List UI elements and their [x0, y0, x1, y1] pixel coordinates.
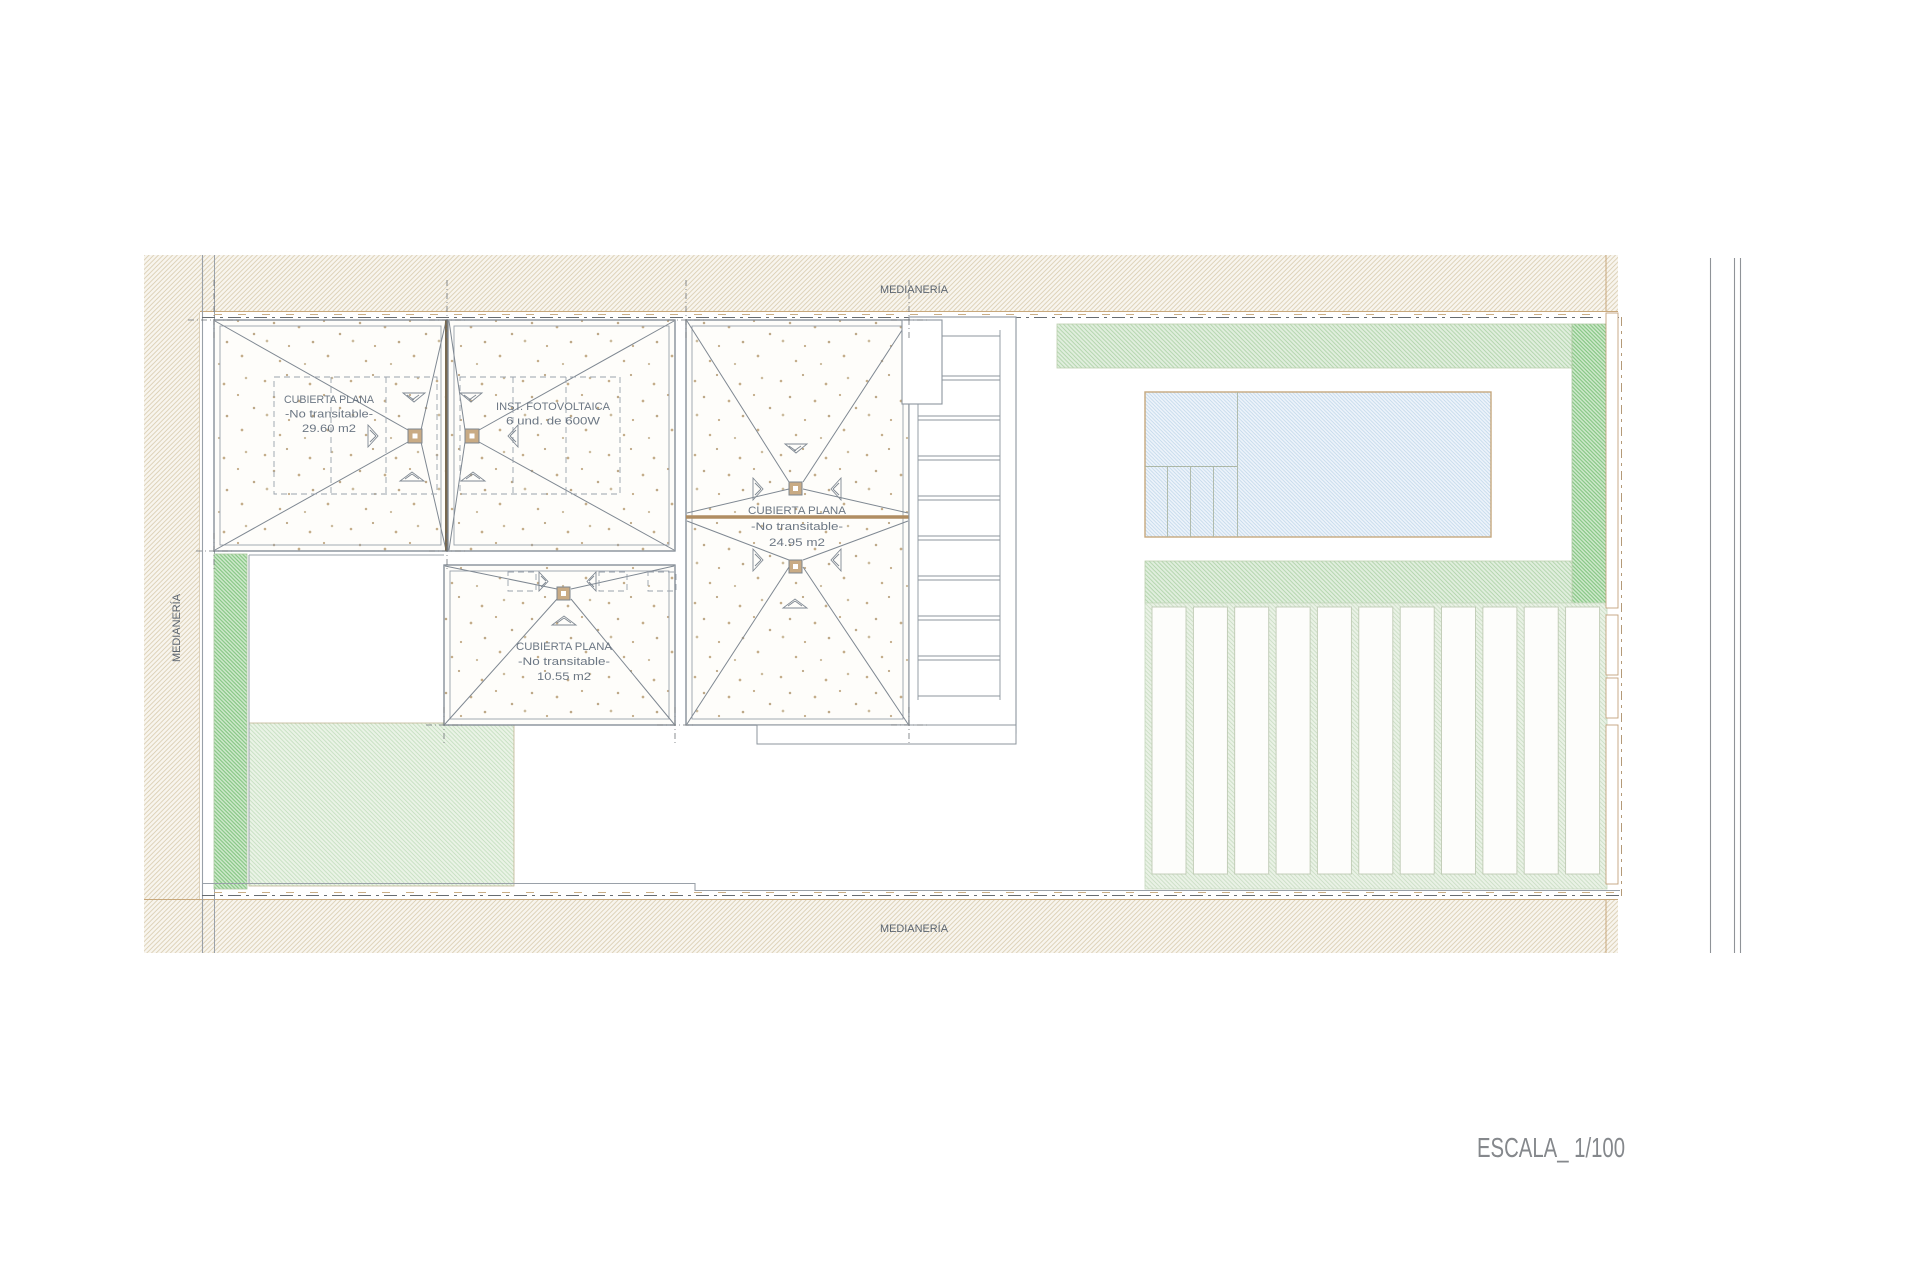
- svg-text:10.55 m2: 10.55 m2: [537, 671, 591, 683]
- svg-text:MEDIANERÍA: MEDIANERÍA: [880, 283, 949, 296]
- svg-text:24.95 m2: 24.95 m2: [769, 537, 825, 549]
- svg-text:29.60 m2: 29.60 m2: [302, 423, 356, 435]
- svg-text:MEDIANERÍA: MEDIANERÍA: [170, 593, 183, 662]
- svg-text:CUBIERTA PLANA: CUBIERTA PLANA: [284, 394, 375, 406]
- svg-text:-No transitable-: -No transitable-: [518, 656, 610, 668]
- svg-text:-No transitable-: -No transitable-: [285, 409, 373, 421]
- svg-text:CUBIERTA PLANA: CUBIERTA PLANA: [748, 505, 847, 517]
- svg-text:CUBIERTA PLANA: CUBIERTA PLANA: [516, 641, 613, 653]
- svg-text:-No transitable-: -No transitable-: [751, 521, 843, 533]
- svg-text:MEDIANERÍA: MEDIANERÍA: [880, 922, 949, 935]
- svg-text:INST. FOTOVOLTAICA: INST. FOTOVOLTAICA: [496, 401, 611, 413]
- svg-text:ESCALA_ 1/100: ESCALA_ 1/100: [1477, 1132, 1625, 1163]
- svg-text:6 und. de 600W: 6 und. de 600W: [506, 416, 601, 428]
